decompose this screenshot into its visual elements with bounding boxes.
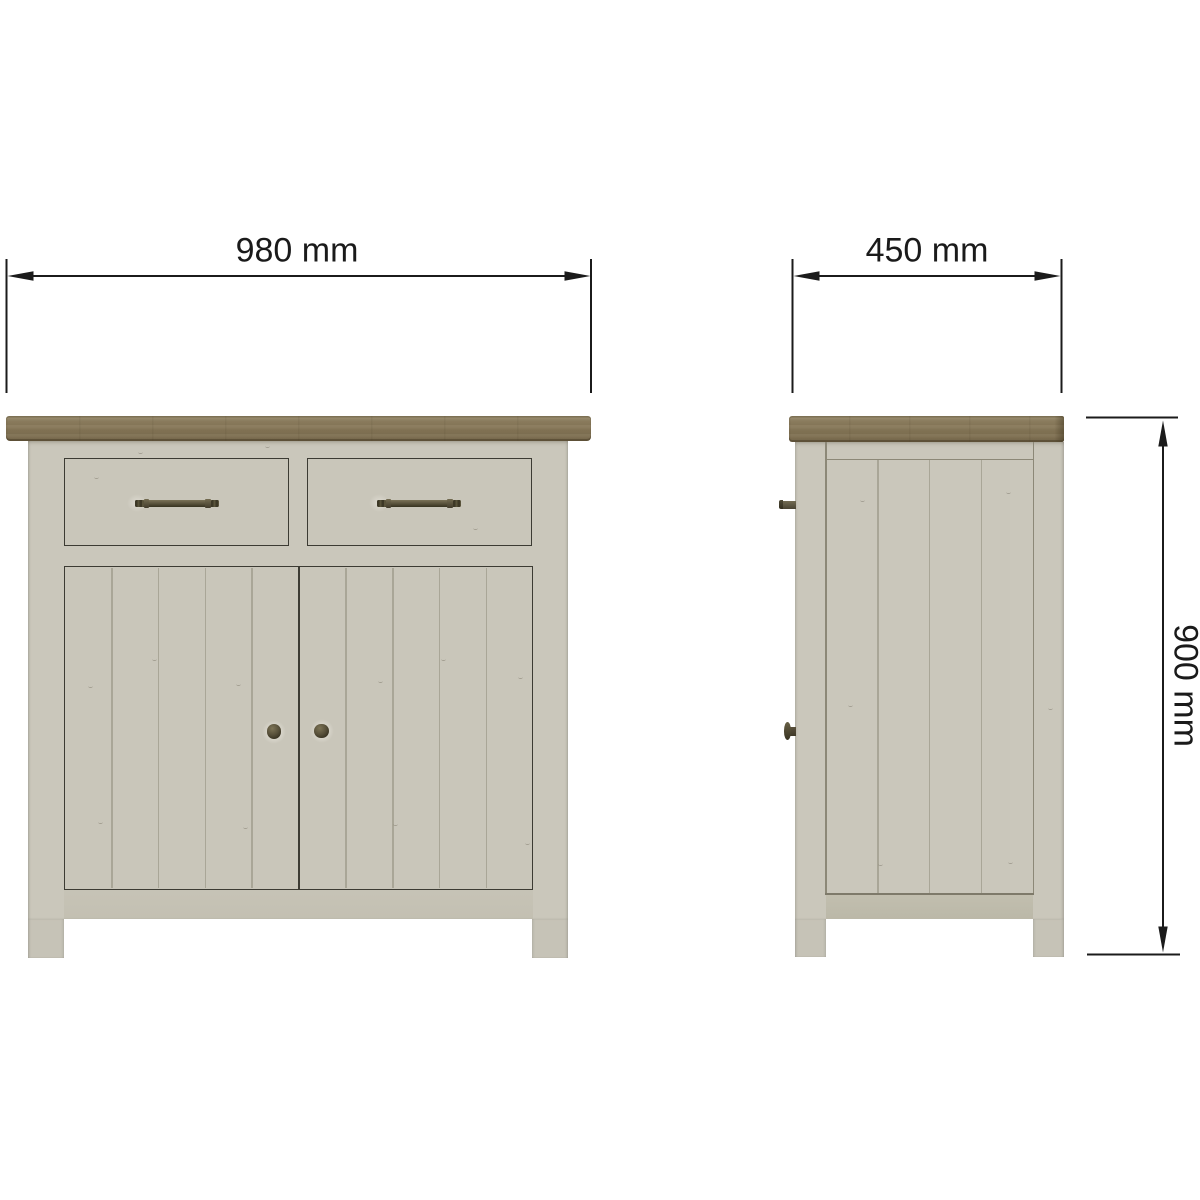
svg-text:980 mm: 980 mm (236, 232, 359, 270)
svg-text:450 mm: 450 mm (866, 232, 989, 270)
svg-text:900 mm: 900 mm (1167, 624, 1200, 747)
